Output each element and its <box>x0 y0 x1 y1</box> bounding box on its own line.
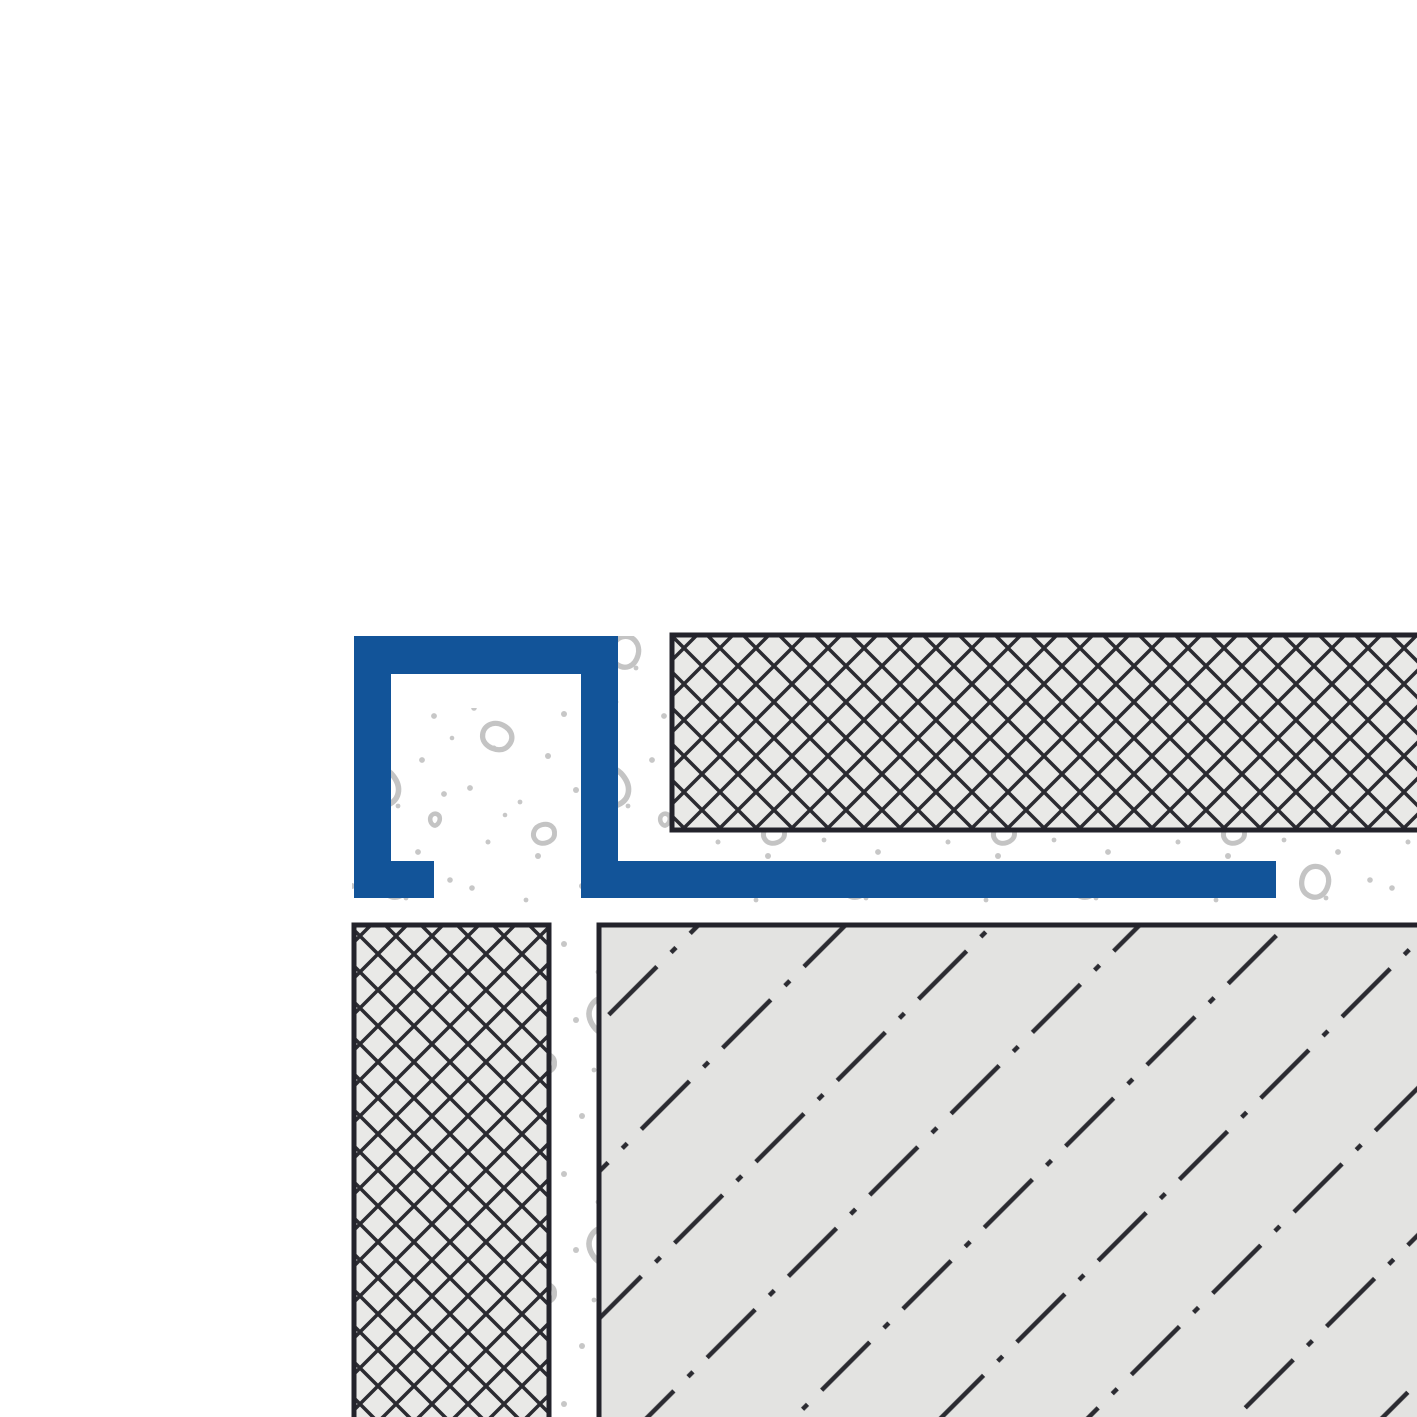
profile-right-wall <box>581 636 618 898</box>
profile-top-bar <box>354 636 618 674</box>
profile-foot <box>354 861 434 898</box>
tile-horizontal <box>672 635 1417 830</box>
profile-left-wall <box>354 636 391 898</box>
mortar-inside-profile <box>390 708 582 862</box>
technical-drawing-canvas <box>0 0 1417 1417</box>
mortar-joint-profile-tile <box>616 636 674 830</box>
mortar-joint-vertical <box>548 925 598 1417</box>
profile-cross-section-diagram <box>0 0 1417 1417</box>
profile-anchoring-leg <box>581 861 1276 898</box>
substrate <box>599 925 1417 1417</box>
tile-vertical <box>354 925 549 1417</box>
